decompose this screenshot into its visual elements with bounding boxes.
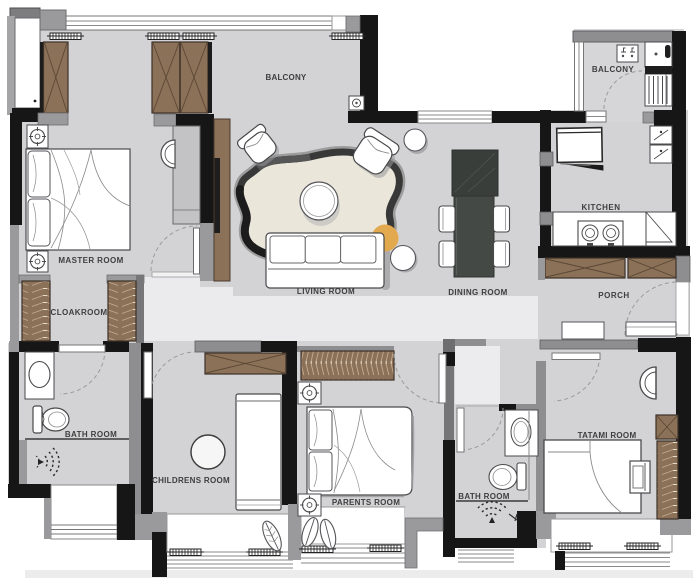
svg-text:BATH ROOM: BATH ROOM (65, 430, 117, 439)
svg-text:CHILDRENS ROOM: CHILDRENS ROOM (152, 476, 230, 485)
svg-text:PARENTS ROOM: PARENTS ROOM (332, 498, 400, 507)
svg-text:PORCH: PORCH (598, 291, 629, 300)
svg-text:MASTER ROOM: MASTER ROOM (58, 256, 123, 265)
svg-text:TATAMI ROOM: TATAMI ROOM (578, 431, 637, 440)
svg-text:BALCONY: BALCONY (592, 65, 635, 74)
svg-text:KITCHEN: KITCHEN (581, 203, 620, 212)
svg-text:LIVING ROOM: LIVING ROOM (297, 287, 355, 296)
svg-text:BALCONY: BALCONY (266, 73, 307, 82)
svg-text:BATH ROOM: BATH ROOM (458, 492, 509, 501)
svg-text:CLOAKROOM: CLOAKROOM (51, 308, 108, 317)
svg-text:DINING ROOM: DINING ROOM (448, 288, 508, 297)
